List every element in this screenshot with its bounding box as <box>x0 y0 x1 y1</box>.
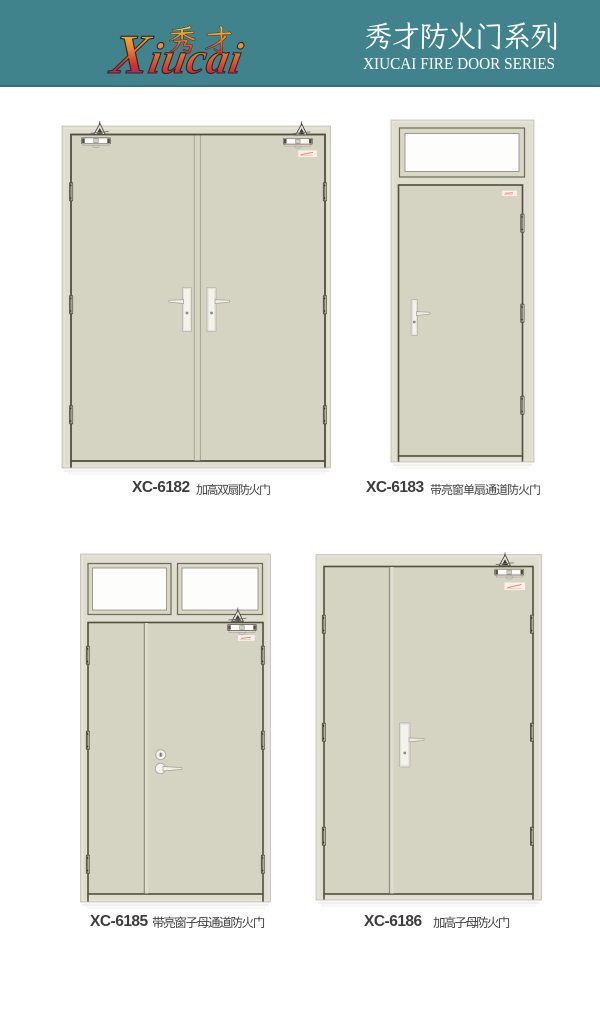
svg-text:XIUCAI FIRE DOOR SERIES: XIUCAI FIRE DOOR SERIES <box>363 54 555 73</box>
